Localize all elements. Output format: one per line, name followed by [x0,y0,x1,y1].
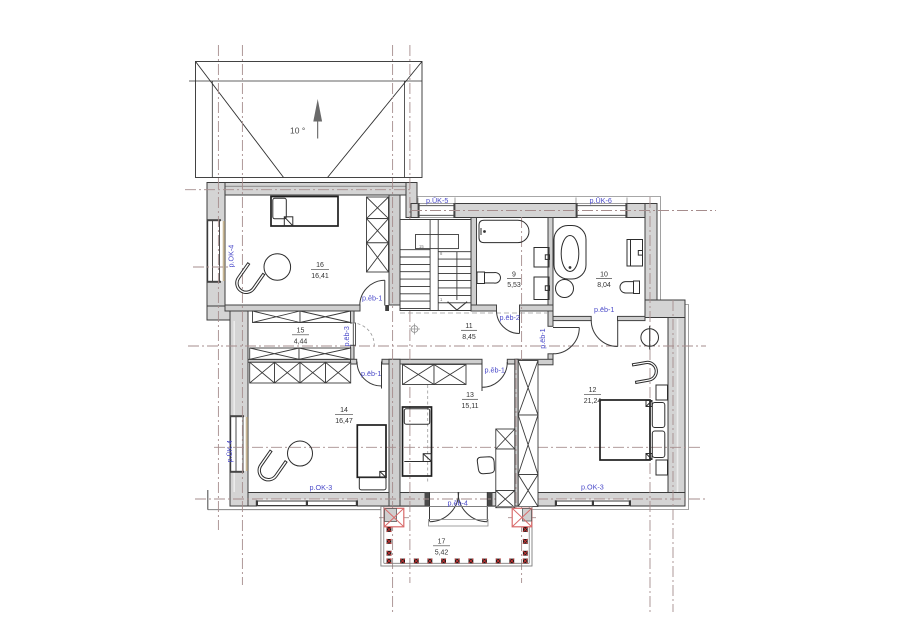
svg-text:11: 11 [465,323,472,330]
svg-text:16: 16 [316,262,324,269]
svg-text:10: 10 [600,271,608,278]
svg-text:p.ēb-3: p.ēb-3 [342,326,351,346]
svg-text:13: 13 [466,392,474,399]
svg-text:8,04: 8,04 [597,282,611,289]
svg-text:15: 15 [297,328,305,335]
svg-text:16,41: 16,41 [311,273,329,280]
svg-text:8,45: 8,45 [462,334,476,341]
svg-text:p.ŪK-6: p.ŪK-6 [590,196,612,205]
svg-text:16,47: 16,47 [335,418,353,425]
svg-text:p.ŪK-4: p.ŪK-4 [225,440,234,462]
svg-text:15,11: 15,11 [462,403,479,410]
svg-text:17: 17 [438,539,446,546]
svg-text:p.ēb-1: p.ēb-1 [594,305,614,314]
svg-text:5,42: 5,42 [435,549,449,556]
svg-text:9: 9 [512,271,516,278]
svg-text:p.ēb-2: p.ēb-2 [500,313,520,322]
svg-text:p.ēb-1: p.ēb-1 [538,328,547,348]
svg-text:4,44: 4,44 [294,338,308,345]
svg-text:p.ēb-1: p.ēb-1 [361,369,381,378]
svg-text:5,53: 5,53 [507,282,521,289]
svg-text:10 °: 10 ° [290,126,305,136]
svg-text:p.ēb-4: p.ēb-4 [448,499,468,508]
svg-text:14: 14 [340,407,348,414]
svg-text:p.ŪK-5: p.ŪK-5 [426,196,448,205]
svg-text:21,24: 21,24 [584,398,602,405]
svg-text:15: 15 [419,244,424,249]
svg-text:12: 12 [589,387,597,394]
svg-text:p.ēb-1: p.ēb-1 [362,294,382,303]
svg-text:p.OK-3: p.OK-3 [581,483,604,492]
svg-text:p.OK-3: p.OK-3 [310,483,333,492]
svg-text:p.OK-4: p.OK-4 [227,245,236,268]
svg-text:p.ēb-1: p.ēb-1 [485,365,505,374]
